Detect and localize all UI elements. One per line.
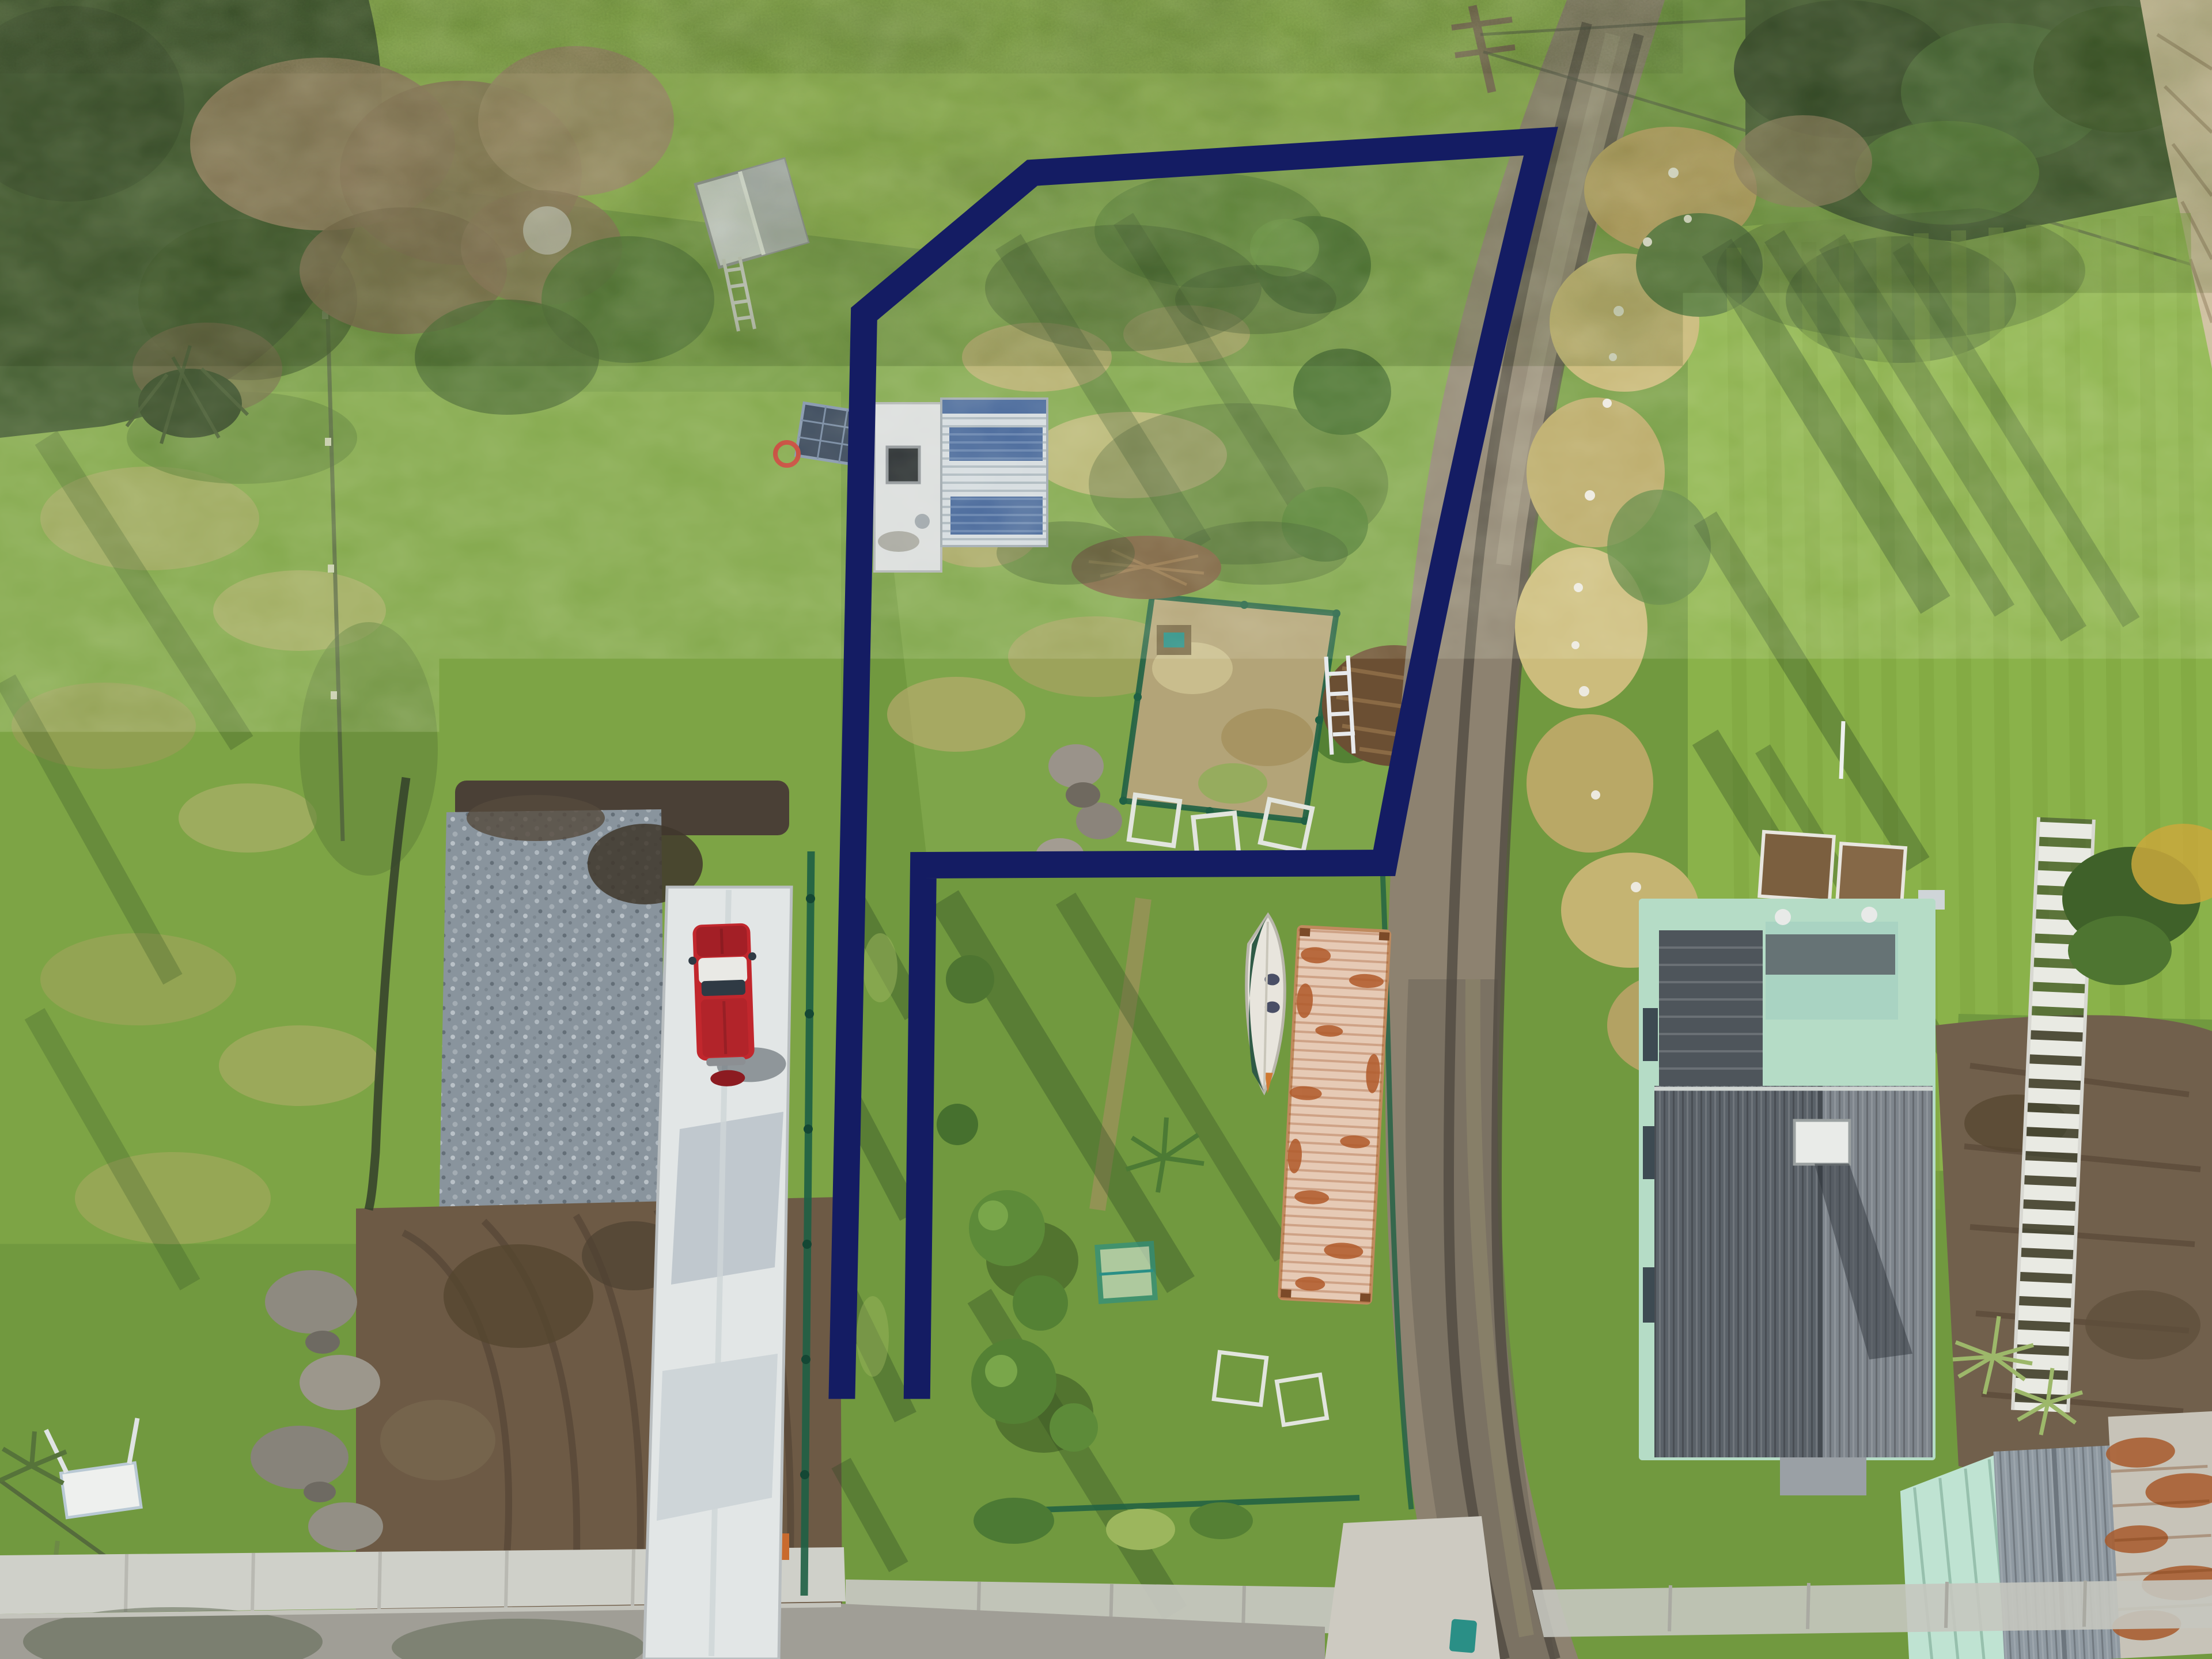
texture-highlight [0, 0, 2212, 1659]
aerial-photo: BOUNDARY LINES ARE INDICATIVE ONLY [0, 0, 2212, 1659]
caption: BOUNDARY LINES ARE INDICATIVE ONLY [16, 1626, 408, 1658]
